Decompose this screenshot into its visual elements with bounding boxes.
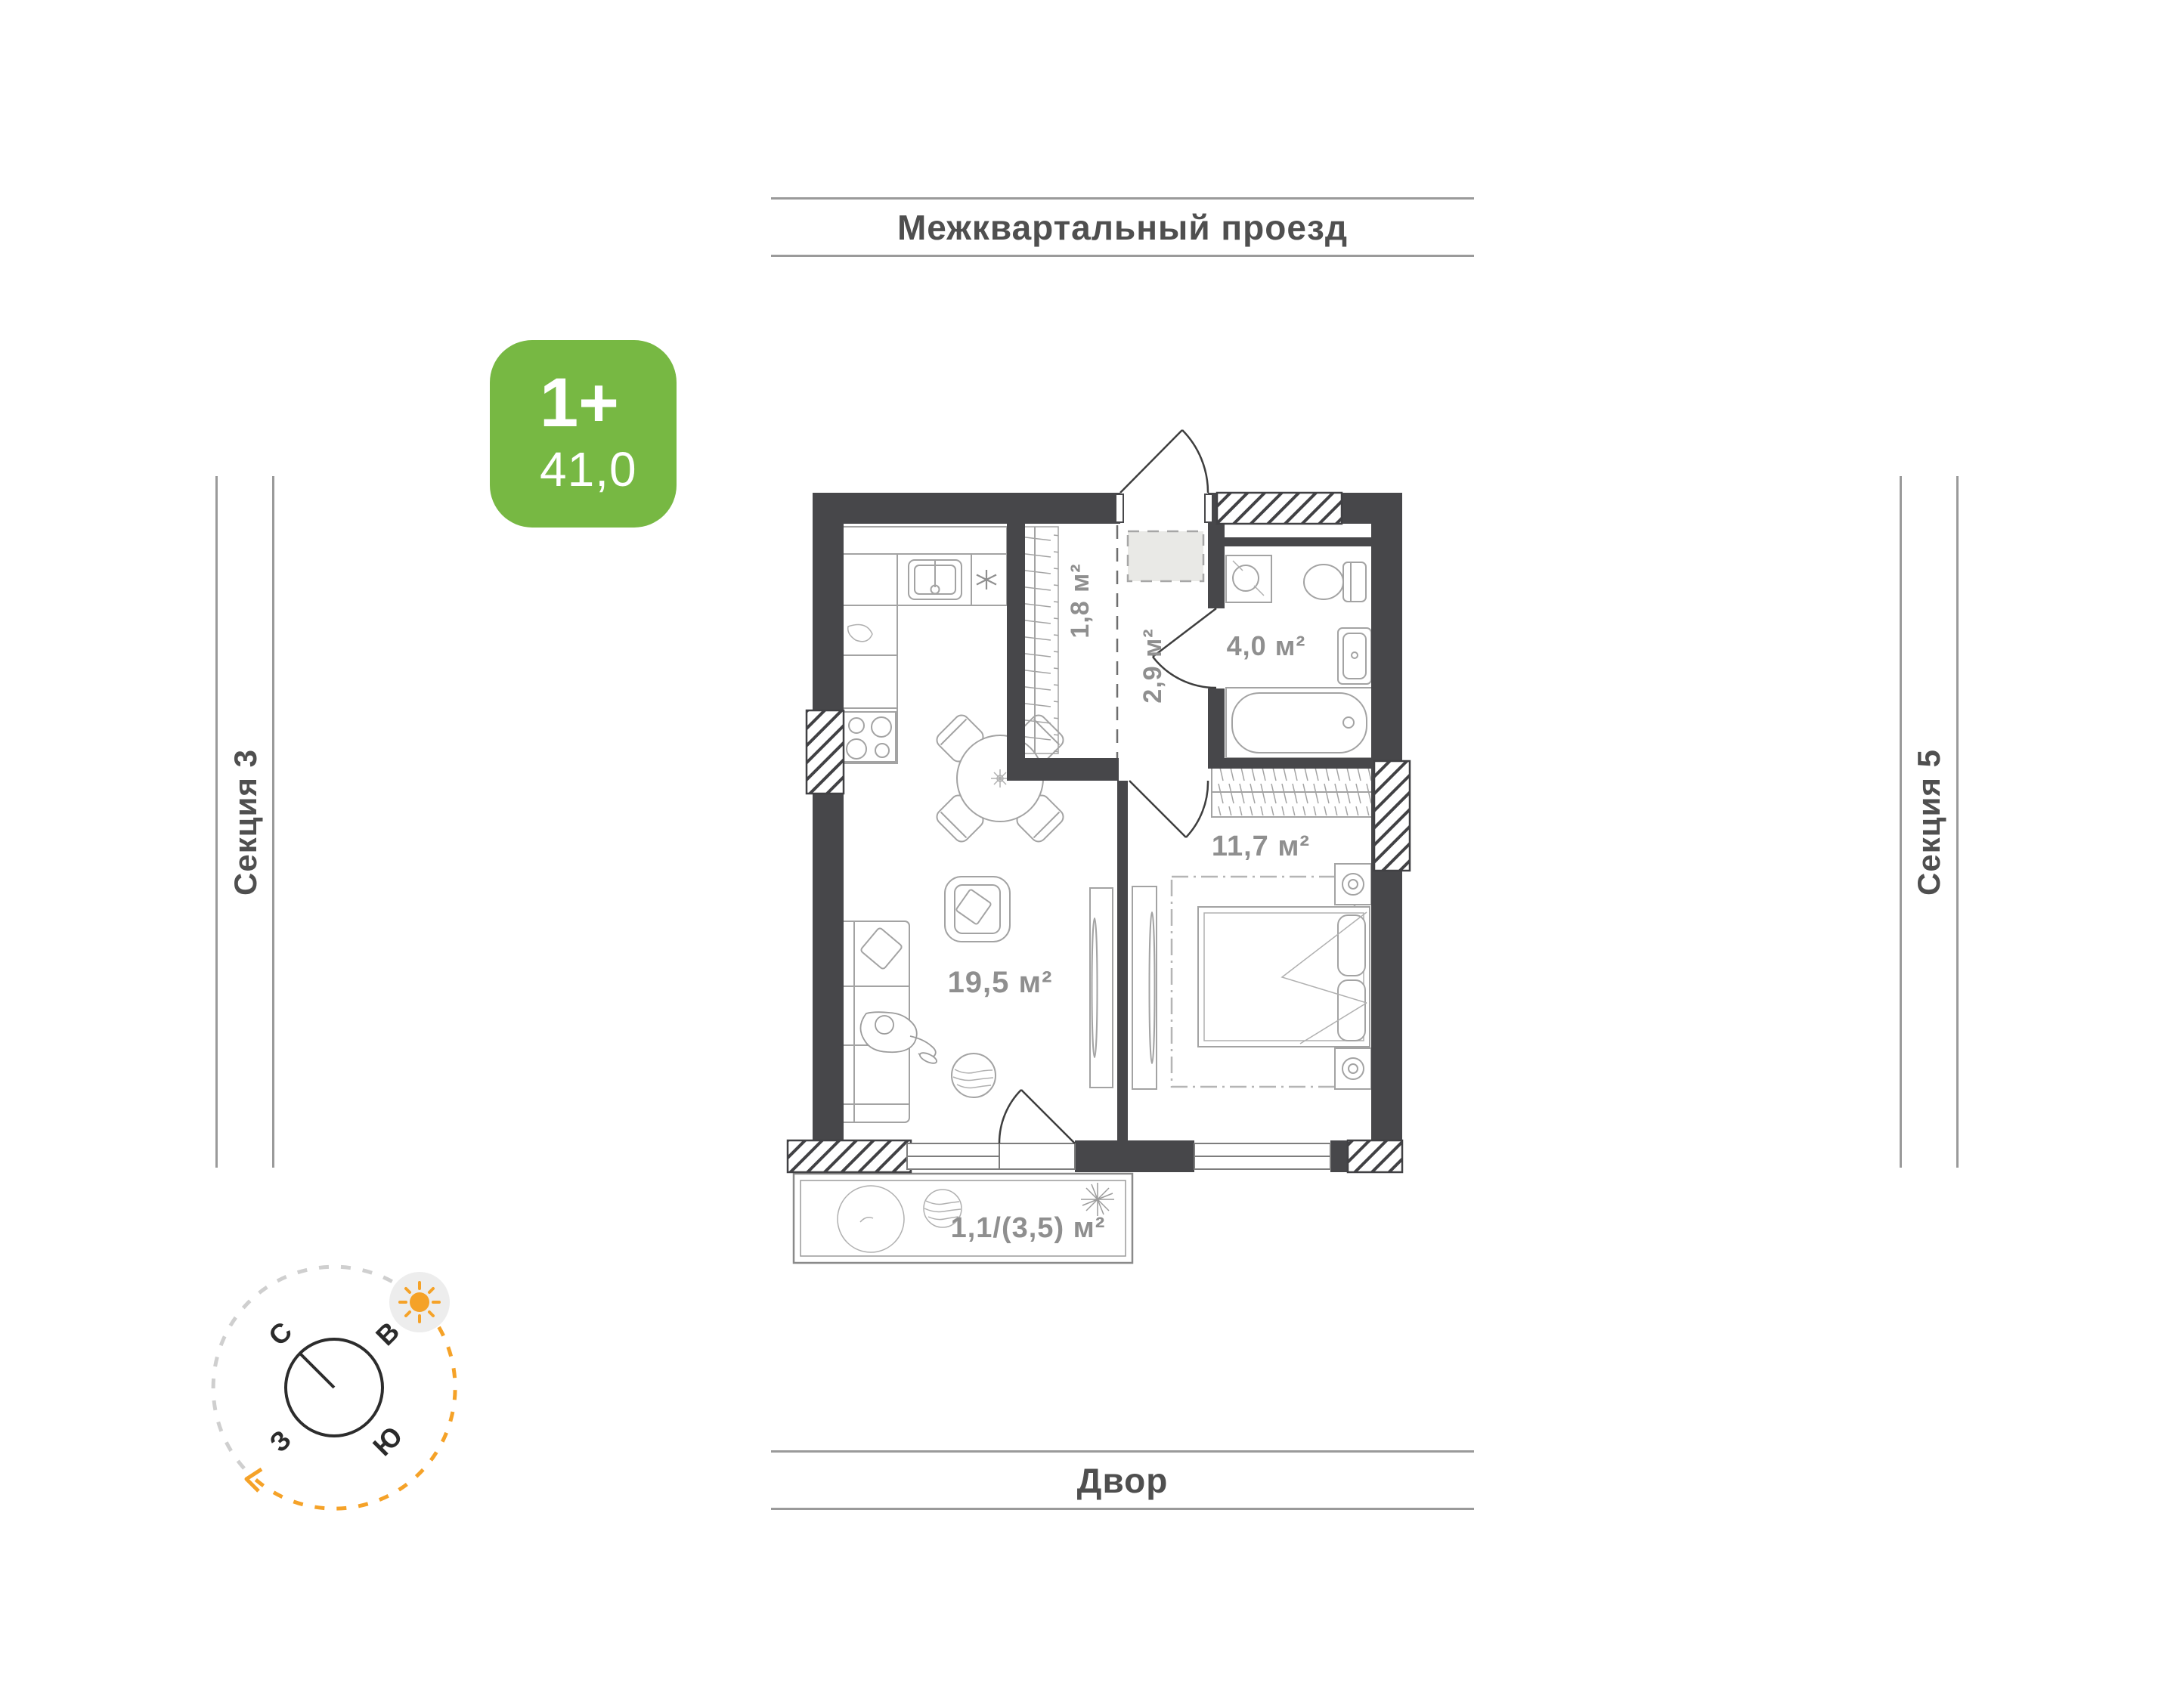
wardrobe-area-label: 1,8 м² — [1066, 563, 1095, 638]
yard-divider-bottom — [771, 1508, 1474, 1510]
bathtub — [1226, 688, 1373, 758]
balcony-door-threshold — [999, 1143, 1075, 1169]
entry-mat — [1128, 531, 1203, 581]
bathroom-sink — [1338, 628, 1371, 684]
nightstand-top — [1335, 864, 1371, 905]
section-left-line-outer — [215, 476, 218, 1168]
tv-stand-bedroom — [1132, 886, 1157, 1089]
bedroom-wardrobe — [1212, 767, 1374, 817]
compass-south: Ю — [367, 1420, 408, 1462]
bedroom-window — [1194, 1143, 1330, 1169]
bedroom-door — [1129, 781, 1208, 837]
kitchen-sink — [909, 560, 962, 599]
section-right-line-outer — [1956, 476, 1959, 1168]
apartment-type-badge: 1+ 41,0 — [490, 340, 677, 528]
compass: С В Ю З — [198, 1252, 470, 1524]
living-window — [907, 1143, 999, 1169]
floor-plan-page: Межквартальный проезд Двор Секция 3 Секц… — [0, 0, 2177, 1708]
compass-north: С — [262, 1316, 298, 1351]
section-right-line-inner — [1900, 476, 1902, 1168]
street-label: Межквартальный проезд — [771, 200, 1474, 255]
compass-arrow-icon — [246, 1469, 262, 1491]
washing-machine — [1226, 555, 1271, 602]
hallway-area-label: 2,9 м² — [1138, 628, 1167, 703]
balcony-door — [999, 1090, 1075, 1143]
pouf — [952, 1054, 996, 1097]
street-block: Межквартальный проезд — [771, 197, 1474, 257]
tv-stand-living — [1090, 888, 1113, 1088]
armchair — [945, 877, 1010, 942]
sun-icon — [389, 1272, 450, 1332]
street-divider-bottom — [771, 255, 1474, 257]
section-left-line-inner — [272, 476, 274, 1168]
yard-label: Двор — [771, 1453, 1474, 1508]
floor-plan: 19,5 м² 11,7 м² 4,0 м² 1,1/(3,5) м² 1,8 … — [771, 412, 1421, 1281]
apartment-total-area: 41,0 — [540, 441, 677, 497]
compass-west: З — [263, 1424, 297, 1458]
living-area-label: 19,5 м² — [948, 966, 1053, 999]
bathroom-area-label: 4,0 м² — [1227, 630, 1306, 661]
entry-door — [1116, 430, 1212, 522]
section-right-label: Секция 5 — [1911, 749, 1947, 896]
bed — [1198, 907, 1370, 1047]
section-left-label: Секция 3 — [228, 749, 264, 896]
stove — [843, 712, 896, 762]
toilet — [1304, 562, 1366, 602]
yard-block: Двор — [771, 1450, 1474, 1510]
apartment-type-label: 1+ — [540, 370, 677, 436]
bedroom-area-label: 11,7 м² — [1212, 831, 1310, 862]
balcony-area-label: 1,1/(3,5) м² — [951, 1212, 1106, 1244]
nightstand-bottom — [1335, 1048, 1371, 1089]
